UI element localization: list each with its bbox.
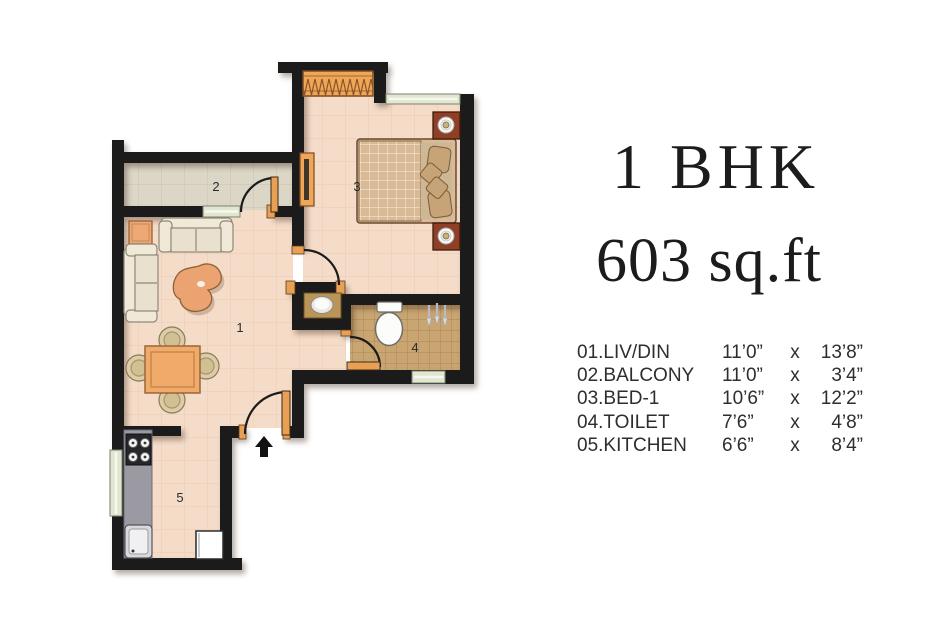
wardrobe [303, 71, 373, 96]
bedroom-window [386, 94, 460, 104]
toilet-west-wall [341, 294, 351, 335]
bedroom-balcony-window [300, 153, 314, 206]
shower-icon [427, 303, 448, 327]
legend-room-name: 03.BED-1 [577, 387, 722, 410]
legend-dim-2: 12’2” [810, 387, 863, 410]
toilet-door-leaf [347, 362, 380, 370]
appliance [196, 531, 223, 559]
side-table [129, 221, 152, 244]
legend-dim-2: 13’8” [810, 341, 863, 364]
balcony-floor [116, 158, 292, 210]
plan-area: 603 sq.ft [596, 226, 822, 297]
legend-row: 02.BALCONY 11’0” x 3’4” [577, 364, 863, 387]
legend-room-name: 02.BALCONY [577, 364, 722, 387]
legend-dim-1: 11’0” [722, 341, 780, 364]
legend-separator: x [780, 387, 810, 410]
nightstand-bottom [433, 223, 460, 250]
balcony-top-wall [112, 152, 304, 163]
balcony-bottom-wall [112, 206, 204, 217]
room-label-toilet: 4 [411, 340, 418, 355]
dining-table [145, 346, 200, 393]
legend-row: 03.BED-1 10’6” x 12’2” [577, 387, 863, 410]
legend-separator: x [780, 411, 810, 434]
floor-plan-drawing: 1 2 3 4 5 [0, 0, 520, 632]
legend-separator: x [780, 434, 810, 457]
double-bed [357, 139, 456, 223]
south-wall [292, 370, 474, 384]
legend-room-name: 01.LIV/DIN [577, 341, 722, 364]
sofa-two-seater [124, 244, 158, 322]
legend-separator: x [780, 341, 810, 364]
balcony-window [203, 206, 240, 217]
room-label-kitchen: 5 [176, 490, 183, 505]
balcony-door-leaf [271, 177, 278, 212]
floor-plan-page: 1 2 3 4 5 1 BHK 603 sq.ft 01.LIV/DIN 11’… [0, 0, 950, 632]
legend-dim-1: 11’0” [722, 364, 780, 387]
east-wall [460, 94, 474, 384]
notch-step-wall [374, 62, 386, 103]
kitchen-sink [125, 525, 152, 558]
nightstand-top [433, 112, 460, 139]
legend-row: 04.TOILET 7’6” x 4’8” [577, 411, 863, 434]
room-label-balcony: 2 [212, 179, 219, 194]
kitchen-window [110, 450, 122, 516]
legend-dim-1: 10’6” [722, 387, 780, 410]
water-closet [376, 302, 403, 346]
legend-dim-2: 4’8” [810, 411, 863, 434]
legend-dim-1: 6’6” [722, 434, 780, 457]
jamb [286, 281, 295, 294]
legend-row: 01.LIV/DIN 11’0” x 13’8” [577, 341, 863, 364]
entrance-door-leaf [282, 391, 290, 435]
legend-row: 05.KITCHEN 6’6” x 8’4” [577, 434, 863, 457]
jamb [292, 246, 304, 254]
kitchen-bottom-wall [112, 558, 242, 570]
sofa-three-seater [159, 218, 233, 252]
entrance-arrow-icon [255, 436, 273, 457]
legend-dim-2: 8’4” [810, 434, 863, 457]
toilet-window [412, 371, 445, 383]
room-legend: 01.LIV/DIN 11’0” x 13’8” 02.BALCONY 11’0… [577, 341, 863, 457]
room-label-living: 1 [236, 320, 243, 335]
jamb [336, 281, 345, 294]
plan-title: 1 BHK [612, 130, 820, 204]
room-label-bedroom: 3 [353, 179, 360, 194]
legend-separator: x [780, 364, 810, 387]
legend-dim-1: 7’6” [722, 411, 780, 434]
wash-basin [304, 293, 341, 318]
legend-room-name: 05.KITCHEN [577, 434, 722, 457]
cooktop [126, 434, 151, 465]
legend-dim-2: 3’4” [810, 364, 863, 387]
legend-room-name: 04.TOILET [577, 411, 722, 434]
jamb [341, 330, 351, 336]
vanity-south-wall [292, 318, 342, 330]
